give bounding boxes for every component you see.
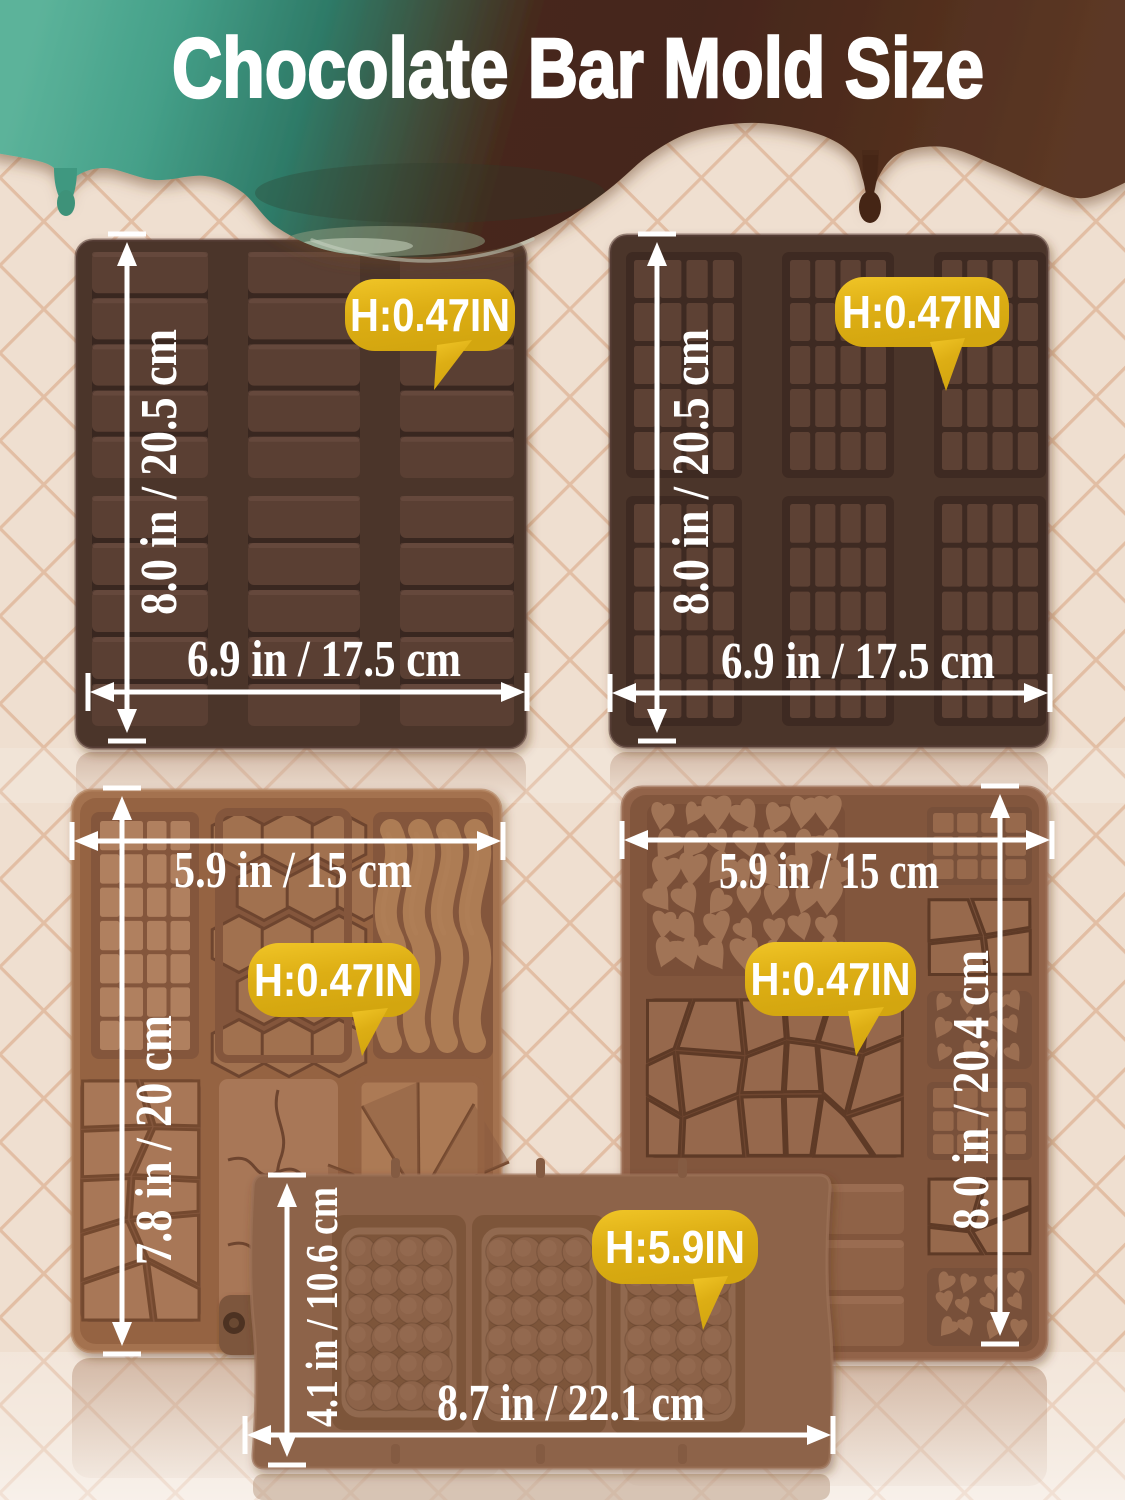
svg-text:H:0.47IN: H:0.47IN	[842, 286, 1002, 338]
svg-text:H:0.47IN: H:0.47IN	[254, 954, 414, 1006]
svg-text:8.0 in / 20.5 cm: 8.0 in / 20.5 cm	[131, 329, 188, 615]
svg-text:H:0.47IN: H:0.47IN	[350, 289, 510, 341]
svg-text:H:5.9IN: H:5.9IN	[605, 1221, 745, 1273]
svg-text:8.0 in / 20.4 cm: 8.0 in / 20.4 cm	[943, 950, 1000, 1230]
svg-text:8.0 in / 20.5 cm: 8.0 in / 20.5 cm	[663, 329, 720, 615]
svg-text:H:0.47IN: H:0.47IN	[751, 953, 911, 1005]
svg-text:Chocolate Bar Mold Size: Chocolate Bar Mold Size	[172, 21, 984, 115]
svg-text:6.9 in / 17.5 cm: 6.9 in / 17.5 cm	[721, 633, 995, 690]
svg-text:8.7 in / 22.1 cm: 8.7 in / 22.1 cm	[437, 1375, 705, 1432]
svg-text:5.9 in / 15 cm: 5.9 in / 15 cm	[174, 842, 412, 899]
svg-text:4.1 in / 10.6 cm: 4.1 in / 10.6 cm	[296, 1187, 347, 1427]
svg-text:7.8 in / 20 cm: 7.8 in / 20 cm	[126, 1015, 183, 1265]
svg-text:6.9 in / 17.5 cm: 6.9 in / 17.5 cm	[187, 631, 461, 688]
svg-text:5.9 in / 15 cm: 5.9 in / 15 cm	[719, 843, 939, 900]
